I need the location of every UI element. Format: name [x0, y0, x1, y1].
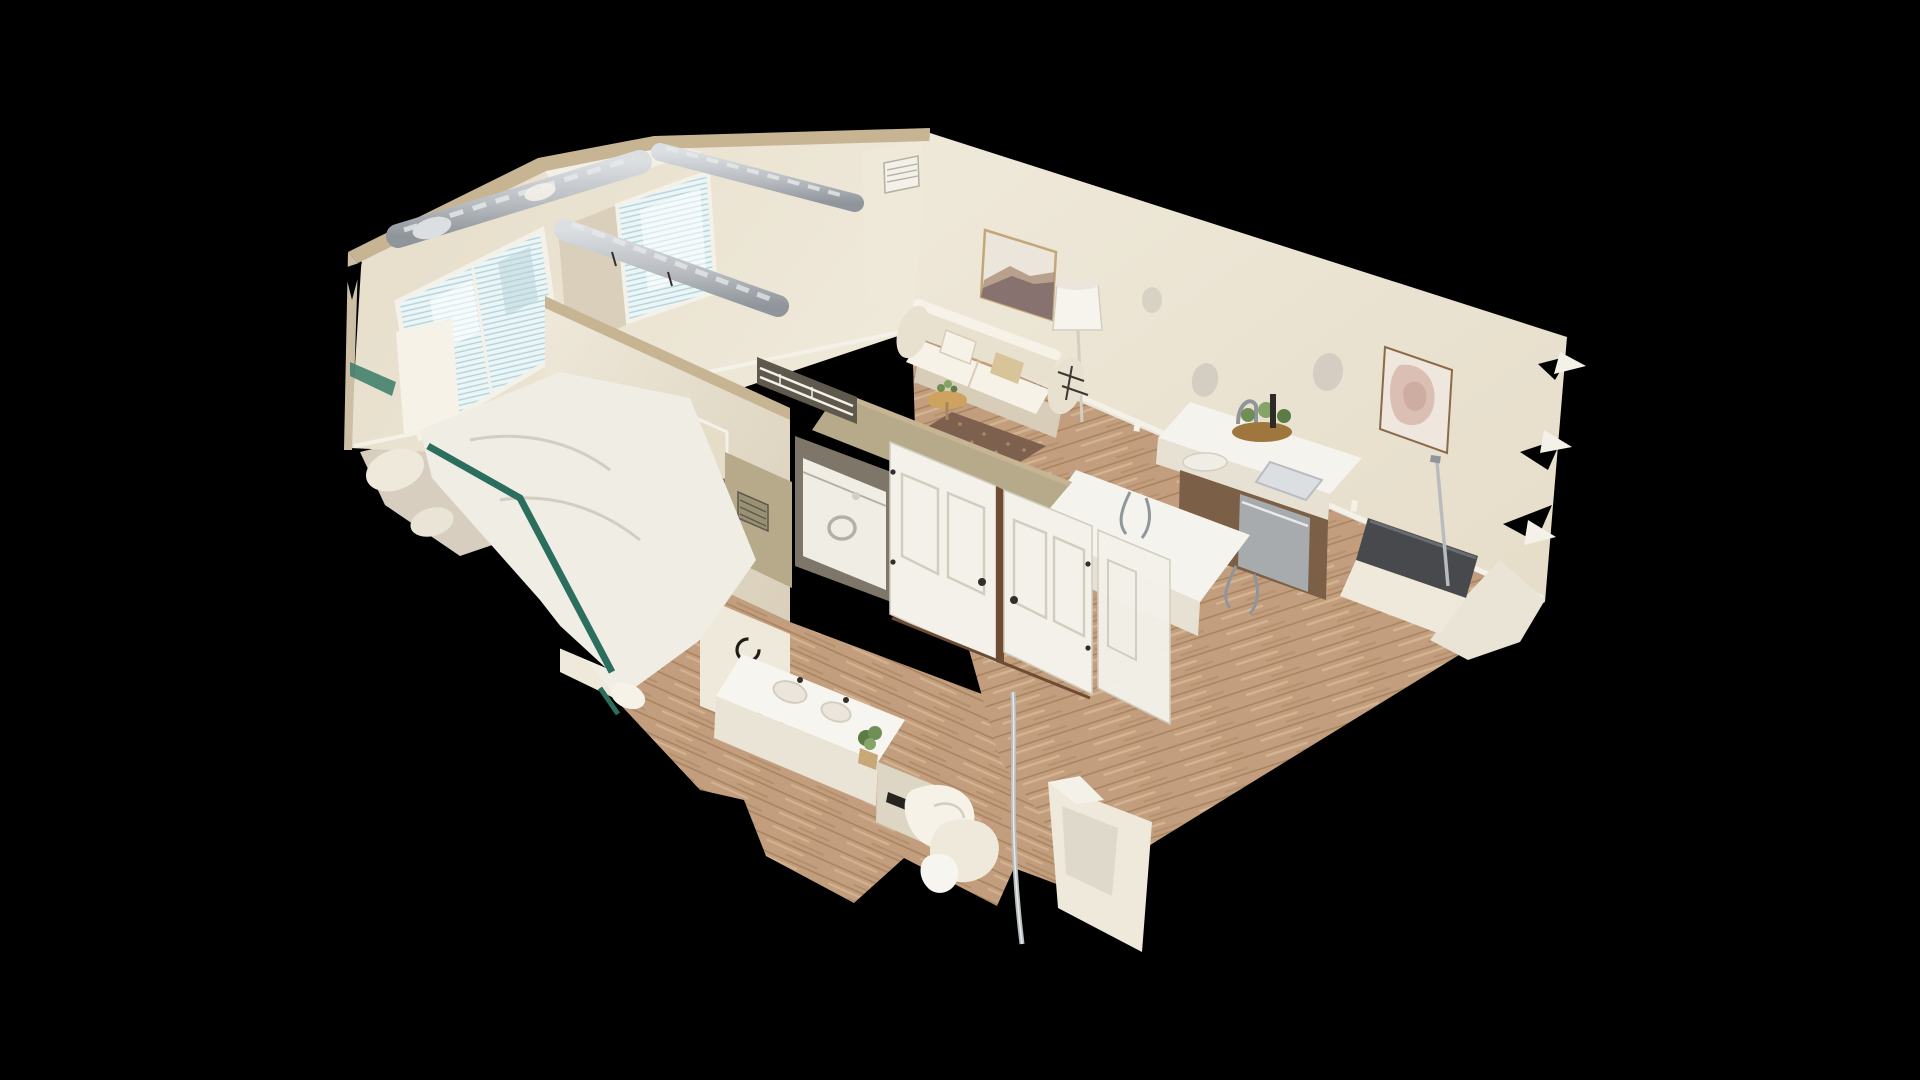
door-hinge: [1085, 561, 1090, 566]
door-gap: [996, 486, 1004, 664]
table-plant: [951, 386, 958, 393]
dollhouse-viewport[interactable]: [0, 0, 1920, 1080]
table-plant: [937, 384, 945, 392]
washer-dial: [852, 492, 860, 500]
table-plant: [944, 380, 952, 388]
door-hinge: [890, 559, 895, 564]
tour-viewer: [0, 0, 1920, 1080]
fruit-bowl: [1183, 453, 1227, 471]
door-knob: [1010, 596, 1018, 604]
headboard: [396, 318, 460, 434]
door-hinge: [1085, 645, 1090, 650]
ceiling-vent-grille: [884, 156, 919, 193]
door-hinge: [890, 469, 895, 474]
door-knob: [978, 578, 986, 586]
pepper-grinder: [1270, 394, 1276, 428]
scan-hole: [1142, 287, 1162, 313]
